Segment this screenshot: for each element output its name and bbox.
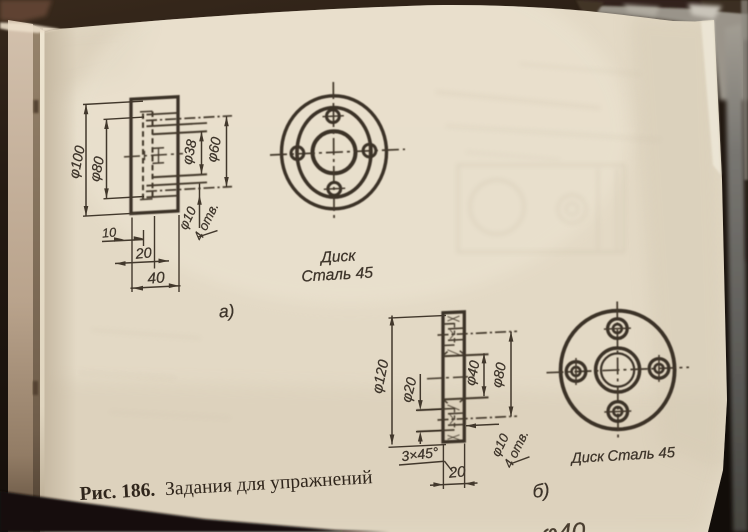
svg-text:а): а) xyxy=(218,300,235,321)
svg-text:б): б) xyxy=(532,480,550,502)
svg-text:20: 20 xyxy=(134,245,152,262)
svg-text:20: 20 xyxy=(447,463,467,482)
svg-text:40: 40 xyxy=(147,269,166,287)
svg-text:Диск: Диск xyxy=(569,449,606,467)
svg-text:Диск: Диск xyxy=(318,247,356,266)
svg-text:φ40: φ40 xyxy=(540,518,586,532)
svg-text:10: 10 xyxy=(101,224,117,240)
